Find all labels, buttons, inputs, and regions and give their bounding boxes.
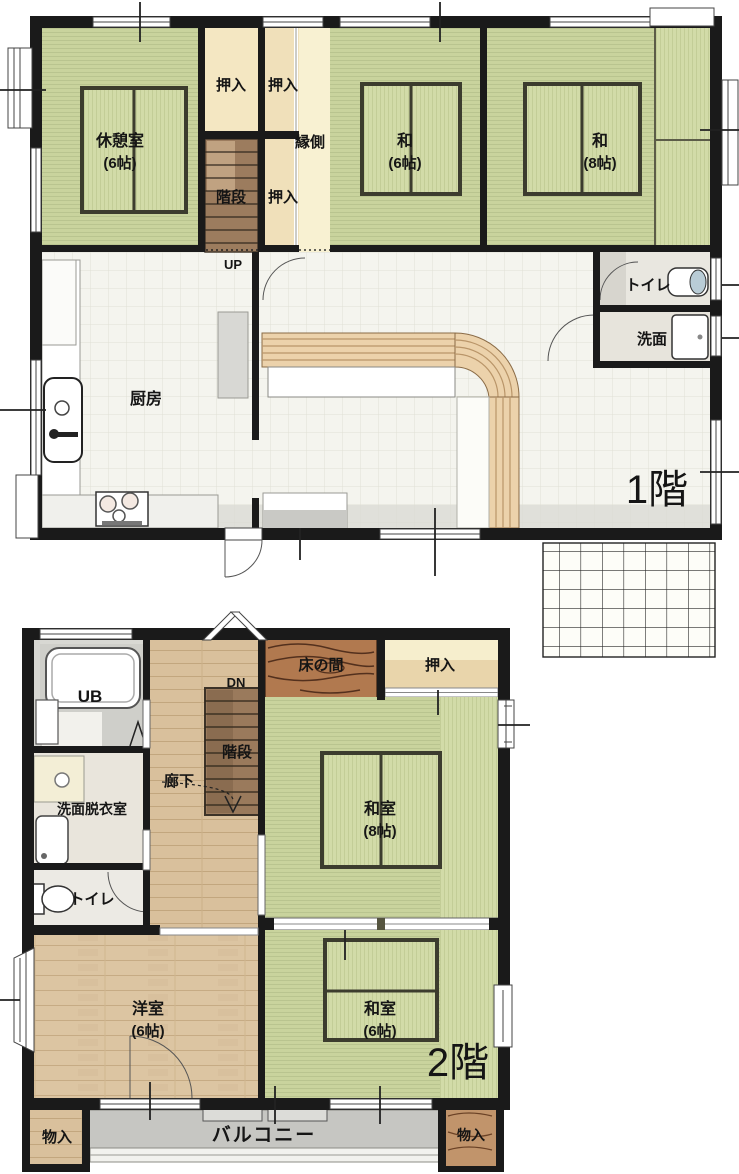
unit-bath-label: UB: [78, 687, 103, 706]
closet-f2-label: 押入: [425, 656, 455, 674]
storage-left-label: 物入: [42, 1128, 72, 1146]
stove-icon: [96, 492, 148, 526]
deck-grid: [543, 543, 715, 657]
western6-size: (6帖): [131, 1022, 164, 1040]
closet-mid-label: 押入: [268, 188, 298, 206]
floor2: UB DN 階段 廊下 床の間 押入 洗面脱衣室 トイレ 和室 (8帖) 洋室 …: [0, 612, 530, 1172]
tatami8-f1-label: 和: [592, 131, 608, 150]
engawa-label: 縁側: [295, 133, 325, 151]
bath-door-gap: [143, 700, 150, 748]
washbasin-icon-f1: [672, 315, 708, 359]
tokonoma-label: 床の間: [298, 656, 343, 674]
toilet-f1-label: トイレ: [625, 277, 670, 294]
washing-machine-icon: [36, 816, 68, 864]
entrance-door-arc: [225, 540, 262, 577]
tatami8-f1-size: (8帖): [583, 154, 616, 172]
washroom-dressing-label: 洗面脱衣室: [57, 801, 127, 817]
floor2-label: 2階: [427, 1041, 489, 1085]
dn-label: DN: [227, 675, 246, 690]
tatami8-f2-label: 和室: [364, 799, 396, 818]
kitchen-sink-icon: [44, 378, 82, 462]
dining-table: [268, 367, 455, 397]
tatami6-f2-label: 和室: [364, 999, 396, 1018]
kitchen-label: 厨房: [130, 389, 162, 408]
closet-column: [265, 28, 299, 252]
western6-label: 洋室: [132, 999, 164, 1018]
stairs-f1-label: 階段: [216, 188, 246, 206]
closet-top-left-label: 押入: [216, 76, 246, 94]
tatami8-entry-gap: [258, 835, 265, 915]
up-label: UP: [224, 257, 242, 272]
fusuma-divider: [265, 918, 498, 930]
washroom-f1-label: 洗面: [637, 330, 667, 348]
hallway-label: 廊下: [164, 772, 194, 790]
floorplan-svg: 休憩室 (6帖) 押入 押入 階段 押入 縁側 和 (6帖) 和 (8帖) UP…: [0, 0, 739, 1174]
dressing-door-gap: [143, 830, 150, 870]
kitchen-cabinet-top: [42, 260, 76, 345]
toilet-f2-label: トイレ: [69, 891, 114, 908]
rest-room-label: 休憩室: [95, 131, 144, 150]
kitchen-tall-cabinet: [218, 312, 248, 398]
closet-top-right-label: 押入: [268, 76, 298, 94]
rest-room-size: (6帖): [103, 154, 136, 172]
floor1-label: 1階: [626, 468, 688, 512]
balcony-label: バルコニー: [212, 1124, 317, 1146]
tatami6-f1-label: 和: [397, 131, 413, 150]
floor1: 休憩室 (6帖) 押入 押入 階段 押入 縁側 和 (6帖) 和 (8帖) UP…: [0, 2, 739, 657]
tatami6-f2-size: (6帖): [363, 1022, 396, 1040]
stairs-f2-label: 階段: [222, 743, 252, 761]
entrance-gap: [225, 528, 262, 540]
tatami8-f2-size: (8帖): [363, 822, 396, 840]
storage-right-label: 物入: [457, 1127, 485, 1143]
tatami6-f1-size: (6帖): [388, 154, 421, 172]
floorplan-canvas: 休憩室 (6帖) 押入 押入 階段 押入 縁側 和 (6帖) 和 (8帖) UP…: [0, 0, 739, 1174]
bath-vanity-icon: [36, 700, 58, 744]
